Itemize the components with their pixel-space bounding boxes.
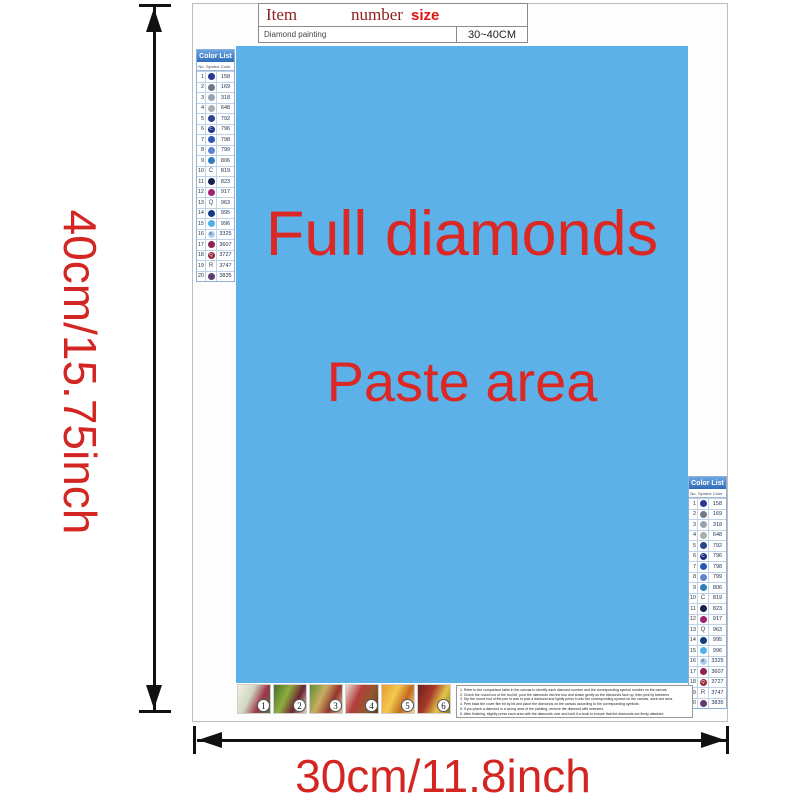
color-code: 799 [217,147,234,153]
color-symbol-icon: Q [698,678,709,688]
color-row-number: 20 [197,272,206,282]
color-row-number: 1 [197,72,206,82]
color-row-number: 9 [197,156,206,166]
color-code: 792 [709,543,726,549]
color-list-row: 5792 [689,540,726,551]
color-code: 3835 [217,273,234,279]
color-list-row: 18Q3727 [197,250,234,261]
color-row-number: 6 [197,125,206,135]
arrowhead-left-icon [198,732,222,748]
color-row-number: 15 [197,219,206,229]
item-size-table: Item number size Diamond painting 30~40C… [258,3,528,43]
color-row-number: 13 [197,198,206,208]
color-list-title: Color List [689,477,726,489]
number-header-label: number [351,5,403,25]
arrowhead-down-icon [146,685,162,709]
step-thumbnails: 123456 [237,684,451,714]
color-list-row: 6C796 [689,551,726,562]
color-code: 796 [709,553,726,559]
color-symbol-icon [698,646,709,656]
item-size-cell: 30~40CM [456,27,527,43]
color-code: 963 [217,200,234,206]
color-symbol-icon: K [698,657,709,667]
color-code: 3727 [217,252,234,258]
color-list-row: 173607 [689,666,726,677]
color-symbol-icon [698,583,709,593]
color-list-row: 18Q3727 [689,677,726,688]
color-row-number: 12 [197,188,206,198]
color-symbol-icon [206,219,217,229]
step-thumbnail: 4 [345,684,379,714]
color-list-columns: No. Symbol Color [689,489,726,498]
arrow-cap-bottom [139,710,171,713]
color-list-row: 3318 [197,92,234,103]
color-symbol-icon [698,573,709,583]
color-code: 996 [709,648,726,654]
color-code: 3727 [709,679,726,685]
color-row-number: 4 [197,104,206,114]
color-list-row: 15996 [197,218,234,229]
col-color: Color [217,64,234,69]
color-code: 798 [217,137,234,143]
color-list-row: 4648 [197,103,234,114]
color-list-row: 203835 [689,698,726,709]
color-list-row: 4648 [689,530,726,541]
color-code: 158 [709,501,726,507]
color-symbol-icon: K [206,230,217,240]
color-list-row: 5792 [197,113,234,124]
step-number-badge: 1 [257,699,270,712]
height-dimension-label: 40cm/15.75inch [53,210,107,535]
color-code: 823 [709,606,726,612]
color-symbol-icon: C [698,594,709,604]
color-row-number: 14 [197,209,206,219]
color-code: 648 [217,105,234,111]
color-symbol-icon: Q [206,198,217,208]
color-code: 995 [217,210,234,216]
color-symbol-icon [698,604,709,614]
color-symbol-icon [698,636,709,646]
color-list-row: 2169 [197,82,234,93]
arrowhead-right-icon [701,732,725,748]
color-code: 169 [709,511,726,517]
color-list-row: 173607 [197,239,234,250]
color-list-rows: 115821693318464857926C79677988799980610C… [197,71,234,281]
color-row-number: 17 [689,667,698,677]
color-list-row: 16K3325 [197,229,234,240]
step-thumbnail: 2 [273,684,307,714]
step-thumbnail: 3 [309,684,343,714]
color-list-left: Color List No. Symbol Color 115821693318… [196,49,235,282]
paste-area-title: Full diamonds [236,198,688,270]
size-header-label: size [411,7,439,24]
color-code: 917 [217,189,234,195]
color-code: 3835 [709,700,726,706]
item-name-cell: Diamond painting [259,27,456,43]
step-thumbnail: 6 [417,684,451,714]
color-symbol-icon [206,209,217,219]
paste-area: Full diamonds Paste area [236,46,688,683]
instruction-box: 1. Refer to the comparison table in the … [456,685,693,718]
step-number-badge: 2 [293,699,306,712]
color-row-number: 7 [197,135,206,145]
color-code: 3607 [217,242,234,248]
color-list-row: 19R3747 [197,260,234,271]
color-list-row: 12917 [197,187,234,198]
col-no: No. [197,64,206,69]
instruction-line: 1. Refer to the comparison table in the … [460,688,689,693]
color-row-number: 15 [689,646,698,656]
color-symbol-icon: C [206,125,217,135]
color-row-number: 14 [689,636,698,646]
color-code: 792 [217,116,234,122]
color-code: 3607 [709,669,726,675]
color-code: 796 [217,126,234,132]
color-symbol-icon [206,135,217,145]
color-row-number: 13 [689,625,698,635]
color-list-row: 10C819 [689,593,726,604]
step-thumbnail: 1 [237,684,271,714]
color-row-number: 2 [197,83,206,93]
color-list-row: 6C796 [197,124,234,135]
color-row-number: 16 [197,230,206,240]
color-code: 799 [709,574,726,580]
color-code: 158 [217,74,234,80]
color-code: 318 [709,522,726,528]
product-diagram: 40cm/15.75inch 30cm/11.8inch Item number… [0,0,800,800]
color-row-number: 12 [689,615,698,625]
color-symbol-icon [206,93,217,103]
color-list-row: 7798 [197,134,234,145]
color-code: 3747 [217,263,234,269]
color-row-number: 8 [689,573,698,583]
color-list-row: 1158 [197,71,234,82]
color-symbol-icon [698,499,709,509]
color-list-row: 9806 [197,155,234,166]
color-code: 798 [709,564,726,570]
color-list-row: 9806 [689,582,726,593]
color-symbol-icon [698,667,709,677]
color-code: 3325 [217,231,234,237]
arrow-shaft-horizontal [197,739,726,742]
color-code: 169 [217,84,234,90]
color-row-number: 7 [689,562,698,572]
color-symbol-icon [698,531,709,541]
item-table-row: Diamond painting 30~40CM [259,27,527,43]
item-header-label: Item [266,5,297,25]
color-symbol-icon: Q [698,625,709,635]
color-code: 318 [217,95,234,101]
step-number-badge: 3 [329,699,342,712]
color-row-number: 17 [197,240,206,250]
color-symbol-icon: R [698,688,709,698]
color-symbol-icon [698,699,709,709]
color-row-number: 16 [689,657,698,667]
color-symbol-icon [206,83,217,93]
width-dimension-label: 30cm/11.8inch [295,749,591,800]
color-list-row: 13Q963 [689,624,726,635]
color-symbol-icon [698,520,709,530]
color-symbol-icon [206,177,217,187]
color-list-right: Color List No. Symbol Color 115821693318… [688,476,727,709]
arrow-cap-right [726,726,729,754]
color-list-rows: 115821693318464857926C79677988799980610C… [689,498,726,708]
color-symbol-icon [698,562,709,572]
color-code: 3747 [709,690,726,696]
color-symbol-icon: Q [206,251,217,261]
col-symbol: Symbol [206,64,217,69]
color-list-row: 16K3325 [689,656,726,667]
step-thumbnail: 5 [381,684,415,714]
color-symbol-icon [698,615,709,625]
color-row-number: 11 [197,177,206,187]
color-list-row: 203835 [197,271,234,282]
color-symbol-icon [206,156,217,166]
color-list-row: 12917 [689,614,726,625]
color-list-row: 19R3747 [689,687,726,698]
color-row-number: 11 [689,604,698,614]
color-row-number: 2 [689,510,698,520]
col-symbol: Symbol [698,491,709,496]
col-no: No. [689,491,698,496]
color-list-row: 10C819 [197,166,234,177]
color-code: 819 [217,168,234,174]
step-number-badge: 4 [365,699,378,712]
item-table-header: Item number size [259,4,527,27]
color-row-number: 8 [197,146,206,156]
color-symbol-icon [206,146,217,156]
color-row-number: 3 [689,520,698,530]
color-row-number: 10 [197,167,206,177]
color-row-number: 5 [689,541,698,551]
color-list-row: 11823 [689,603,726,614]
color-list-row: 1158 [689,498,726,509]
arrow-shaft-vertical [153,7,156,712]
color-code: 995 [709,637,726,643]
color-symbol-icon [698,541,709,551]
paste-area-subtitle: Paste area [236,349,688,414]
color-list-row: 2169 [689,509,726,520]
color-row-number: 9 [689,583,698,593]
color-symbol-icon [206,188,217,198]
color-row-number: 4 [689,531,698,541]
color-row-number: 19 [197,261,206,271]
color-row-number: 6 [689,552,698,562]
color-list-row: 13Q963 [197,197,234,208]
color-symbol-icon: R [206,261,217,271]
color-list-row: 11823 [197,176,234,187]
color-symbol-icon [698,510,709,520]
color-code: 963 [709,627,726,633]
color-code: 917 [709,616,726,622]
color-code: 823 [217,179,234,185]
step-number-badge: 6 [437,699,450,712]
color-symbol-icon [206,72,217,82]
color-symbol-icon [206,272,217,282]
color-list-row: 8799 [689,572,726,583]
color-list-row: 7798 [689,561,726,572]
color-code: 819 [709,595,726,601]
arrow-cap-left [193,726,196,754]
color-row-number: 1 [689,499,698,509]
instruction-line: 6. After finishing, slightly press each … [460,712,689,717]
color-list-row: 8799 [197,145,234,156]
step-number-badge: 5 [401,699,414,712]
color-code: 648 [709,532,726,538]
color-list-row: 15996 [689,645,726,656]
canvas-sheet: Item number size Diamond painting 30~40C… [192,3,728,722]
color-symbol-icon: C [206,167,217,177]
color-code: 3325 [709,658,726,664]
color-symbol-icon [206,104,217,114]
color-list-columns: No. Symbol Color [197,62,234,71]
color-code: 806 [217,158,234,164]
color-row-number: 5 [197,114,206,124]
arrowhead-up-icon [146,8,162,32]
color-symbol-icon [206,114,217,124]
color-symbol-icon: C [698,552,709,562]
color-row-number: 10 [689,594,698,604]
col-color: Color [709,491,726,496]
color-list-row: 14995 [689,635,726,646]
color-symbol-icon [206,240,217,250]
color-code: 996 [217,221,234,227]
color-list-row: 14995 [197,208,234,219]
color-list-row: 3318 [689,519,726,530]
color-list-title: Color List [197,50,234,62]
color-row-number: 18 [197,251,206,261]
color-row-number: 3 [197,93,206,103]
color-code: 806 [709,585,726,591]
